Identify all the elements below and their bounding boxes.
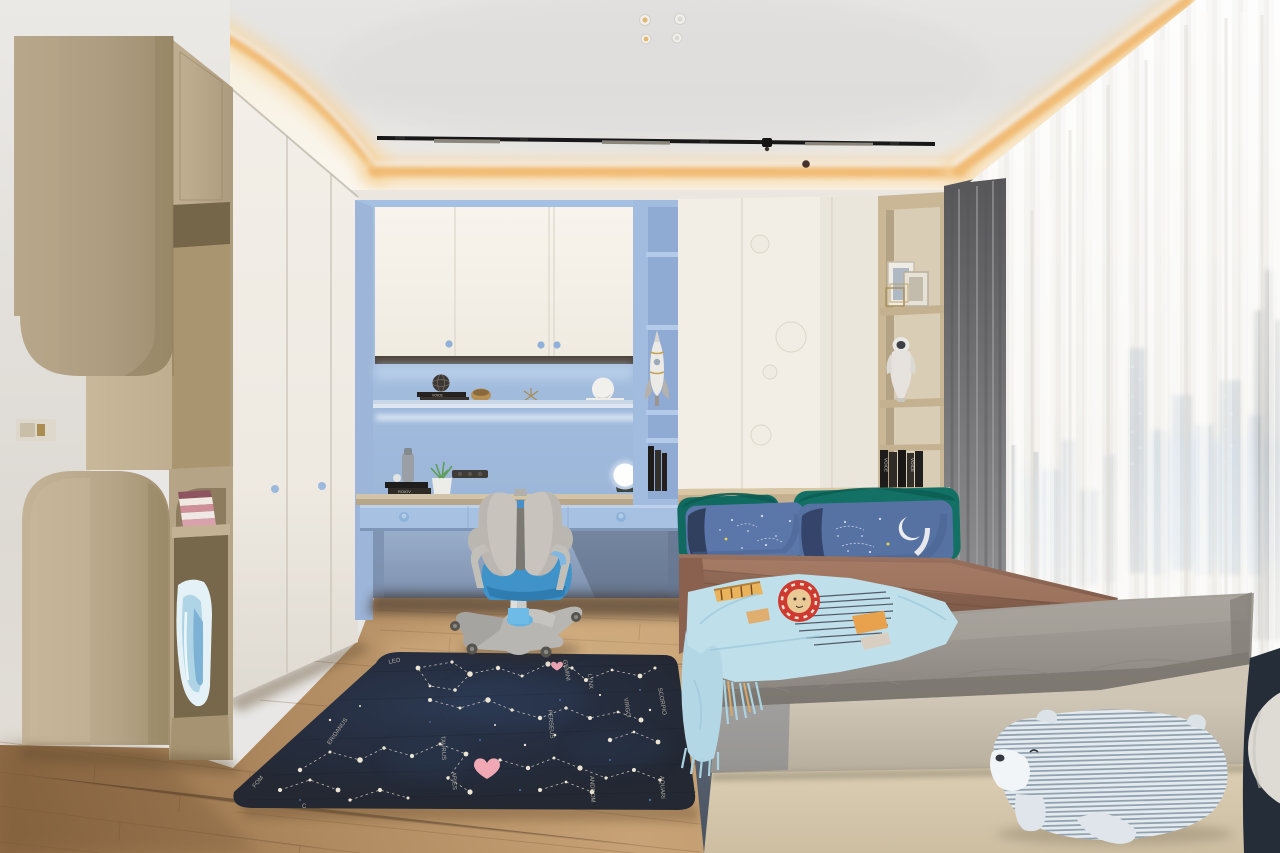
svg-text:TAURUS: TAURUS: [439, 736, 446, 761]
svg-text:VOICE: VOICE: [884, 458, 889, 472]
svg-text:C: C: [302, 804, 307, 810]
svg-text:VOICE: VOICE: [432, 394, 444, 398]
svg-text:ARIES: ARIES: [450, 772, 457, 790]
svg-text:ROIOV: ROIOV: [398, 489, 411, 494]
svg-text:VOICE: VOICE: [910, 458, 915, 472]
svg-text:AQUARI: AQUARI: [658, 776, 665, 800]
